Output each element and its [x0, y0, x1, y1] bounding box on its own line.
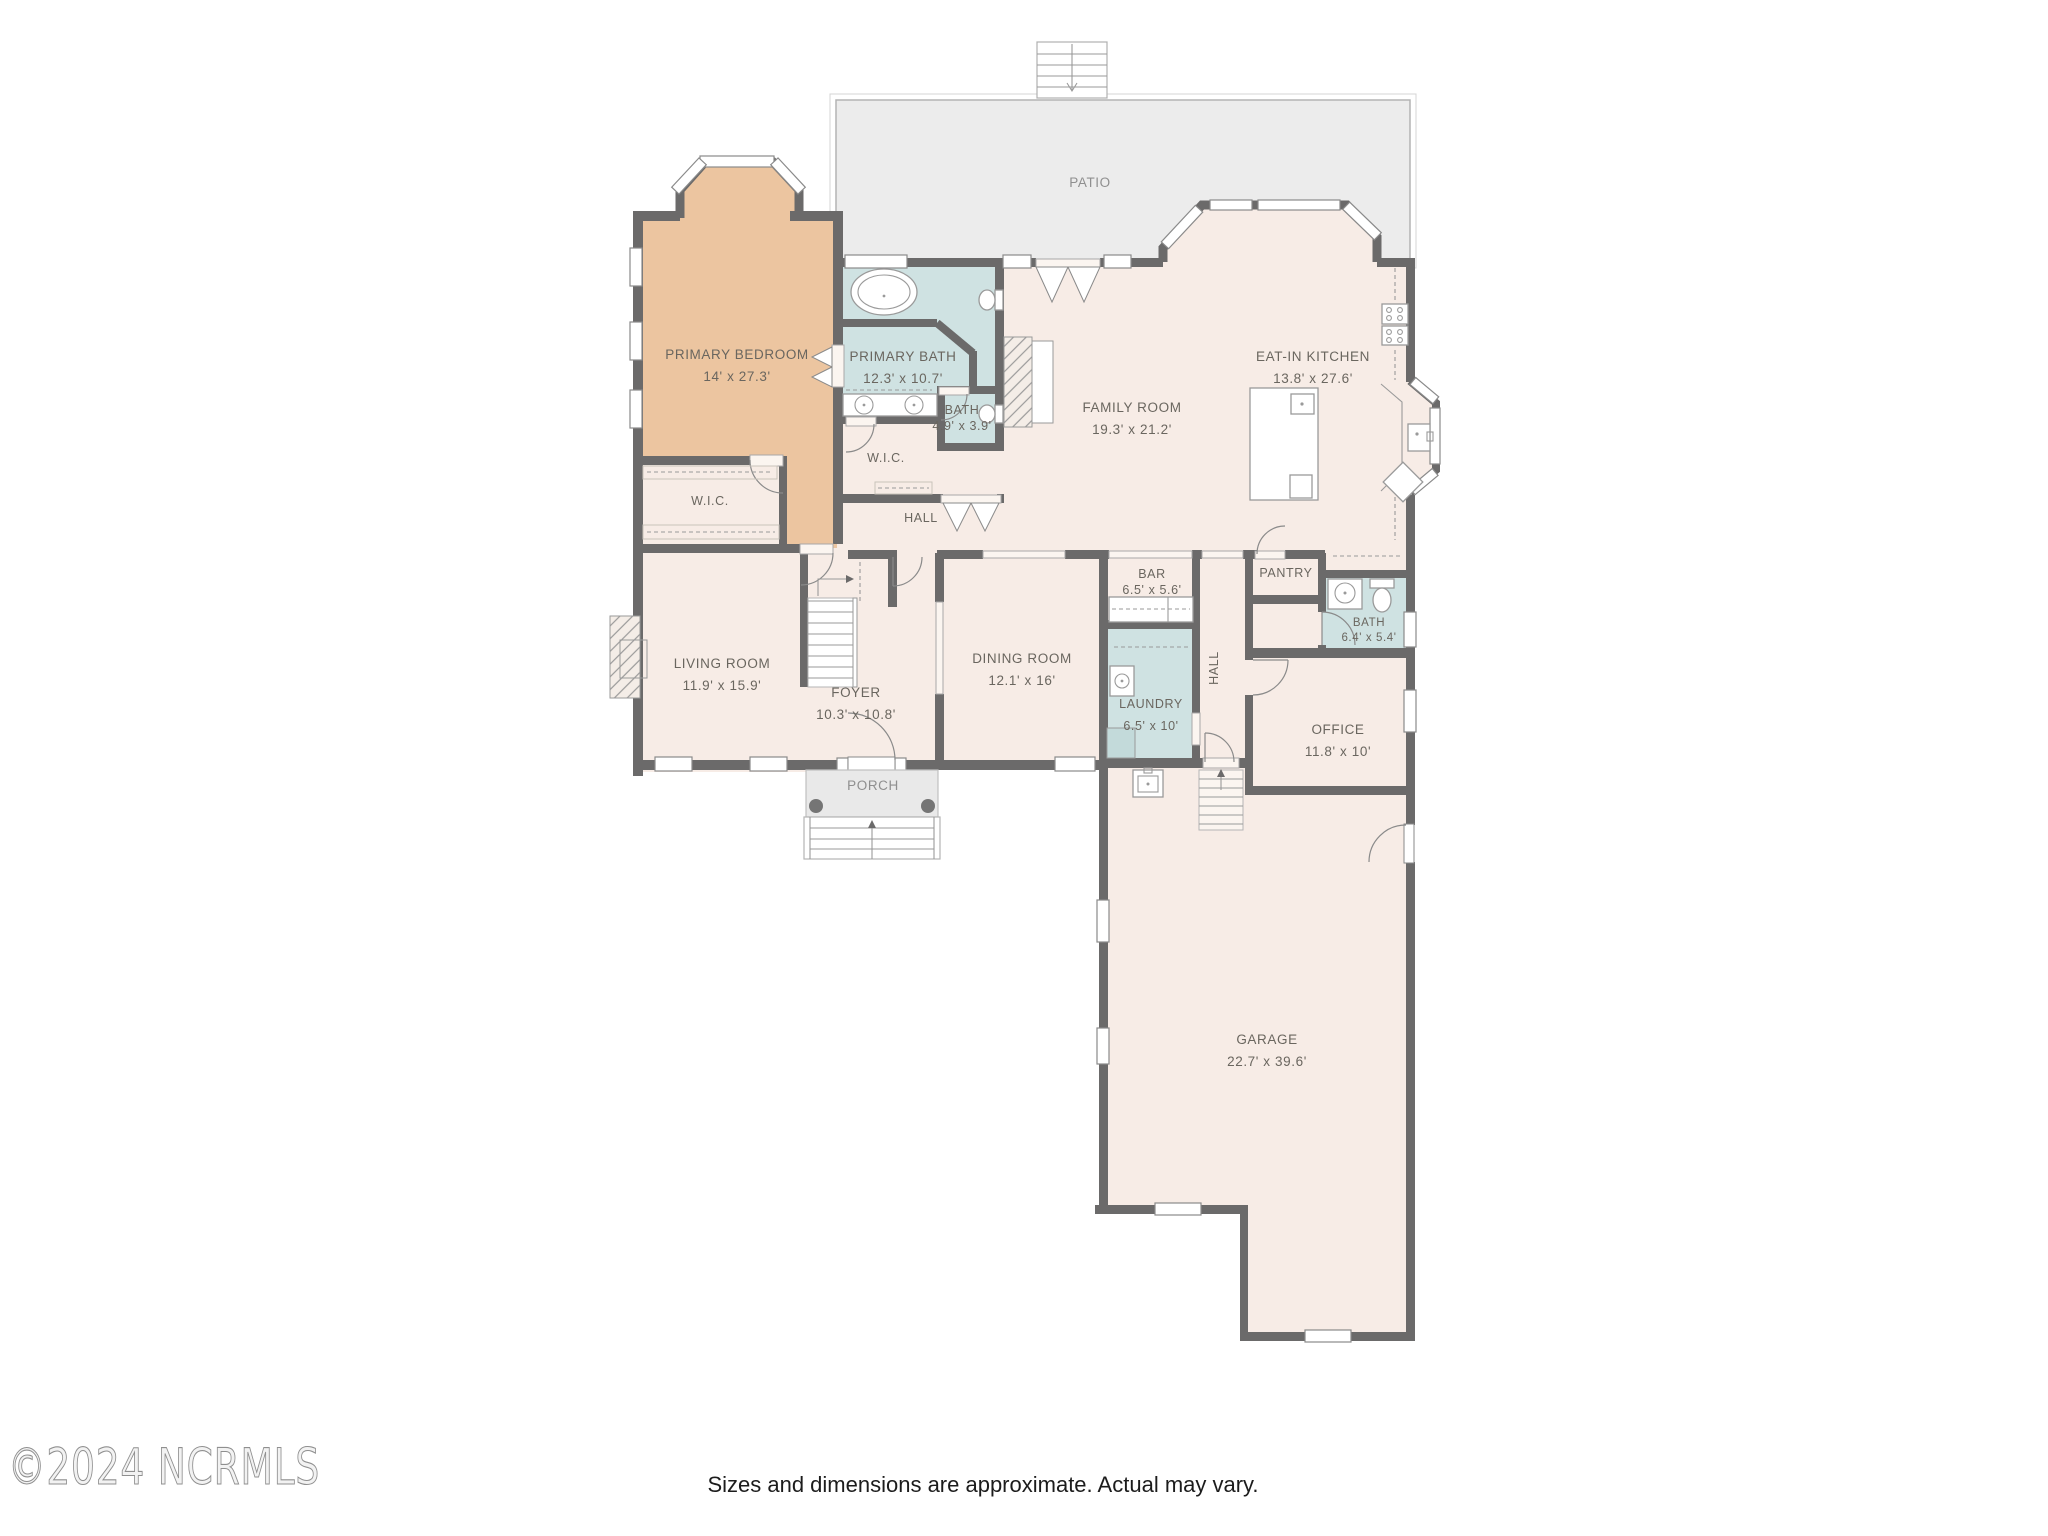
bar-dims: 6.5' x 5.6' — [1122, 583, 1181, 597]
range-oven-icon — [1382, 304, 1408, 345]
family-room-dims: 19.3' x 21.2' — [1092, 422, 1172, 437]
floor-plan-drawing: PATIO PRIMARY BEDROOM 14' x 27.3' PRIMAR… — [0, 0, 2048, 1536]
porch-steps-icon — [804, 817, 940, 859]
living-room-label: LIVING ROOM — [674, 656, 771, 671]
porch-column-icon — [809, 799, 823, 813]
garage-label: GARAGE — [1236, 1032, 1297, 1047]
toilet-icon — [979, 290, 1003, 310]
primary-bath-dims: 12.3' x 10.7' — [863, 371, 943, 386]
double-vanity-icon — [843, 390, 937, 416]
utility-sink-icon — [1133, 768, 1163, 797]
kitchen-island-icon — [1250, 388, 1318, 500]
office-label: OFFICE — [1311, 722, 1364, 737]
bay-sink-icon — [1408, 424, 1433, 451]
family-room-label: FAMILY ROOM — [1082, 400, 1181, 415]
patio-label: PATIO — [1069, 175, 1111, 190]
mls-watermark: ©2024 NCRMLS — [8, 1438, 320, 1496]
garage-dims: 22.7' x 39.6' — [1227, 1054, 1307, 1069]
bath-small-label: BATH — [945, 403, 980, 417]
bar-counter-icon — [1109, 597, 1193, 622]
bath-small-dims: 4.9' x 3.9' — [932, 419, 991, 433]
bar-label: BAR — [1138, 567, 1166, 581]
laundry-label: LAUNDRY — [1119, 697, 1183, 711]
primary-bedroom-dims: 14' x 27.3' — [703, 369, 770, 384]
pantry-label: PANTRY — [1259, 566, 1312, 580]
living-room-dims: 11.9' x 15.9' — [683, 678, 762, 693]
family-room-fireplace-icon — [1004, 337, 1053, 427]
porch-column-icon — [921, 799, 935, 813]
bath-hall-dims: 6.4' x 5.4' — [1341, 632, 1396, 644]
kitchen-dims: 13.8' x 27.6' — [1273, 371, 1353, 386]
dining-room-label: DINING ROOM — [972, 651, 1072, 666]
disclaimer-caption: Sizes and dimensions are approximate. Ac… — [707, 1472, 1258, 1497]
hall-upper-label: HALL — [904, 511, 938, 525]
porch-label: PORCH — [847, 778, 899, 793]
office-dims: 11.8' x 10' — [1305, 744, 1371, 759]
foyer-dims: 10.3' x 10.8' — [816, 707, 896, 722]
primary-bath-label: PRIMARY BATH — [850, 349, 957, 364]
hall-lower-label: HALL — [1207, 651, 1221, 685]
floor-plan-page: PATIO PRIMARY BEDROOM 14' x 27.3' PRIMAR… — [0, 0, 2048, 1536]
laundry-dims: 6.5' x 10' — [1123, 719, 1178, 733]
wic-bedroom-label: W.I.C. — [691, 494, 729, 508]
bath-hall-label: BATH — [1353, 617, 1385, 629]
primary-bedroom-label: PRIMARY BEDROOM — [665, 347, 809, 362]
patio-steps-icon — [1037, 42, 1107, 98]
wic-hall-label: W.I.C. — [867, 451, 905, 465]
dining-room-dims: 12.1' x 16' — [988, 673, 1055, 688]
sink-icon — [1328, 579, 1362, 609]
bathtub-icon — [851, 269, 917, 315]
foyer-label: FOYER — [831, 685, 881, 700]
garage-staircase-icon — [1199, 769, 1243, 830]
kitchen-label: EAT-IN KITCHEN — [1256, 349, 1370, 364]
